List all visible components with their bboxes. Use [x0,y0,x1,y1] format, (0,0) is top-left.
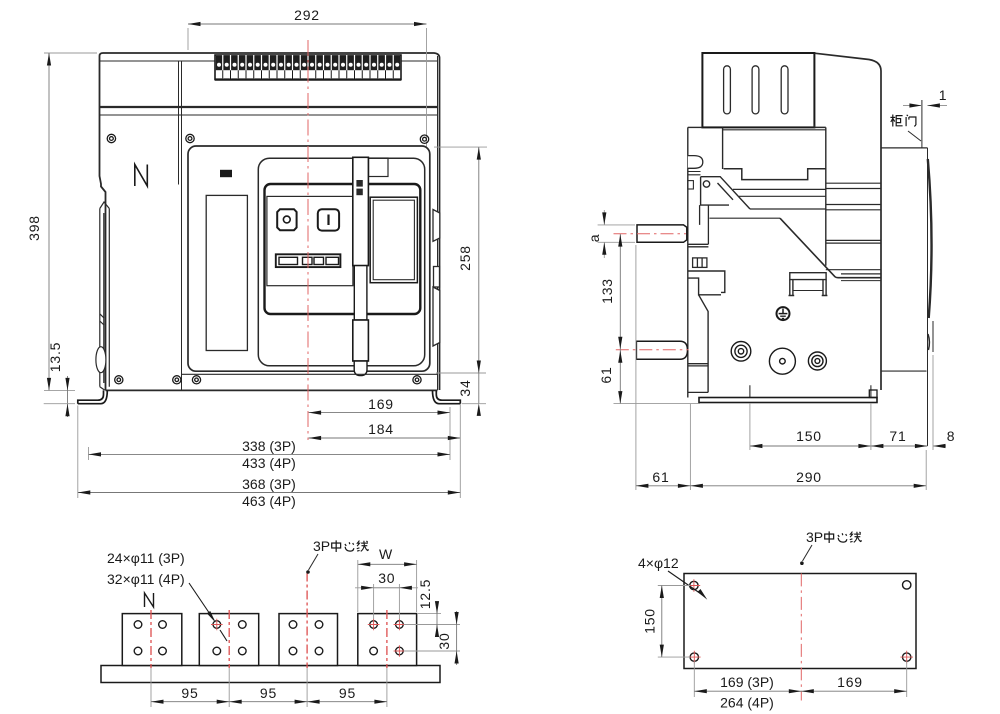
svg-text:184: 184 [368,421,394,437]
svg-text:61: 61 [598,366,614,383]
svg-text:169 (3P): 169 (3P) [720,674,774,690]
svg-text:3P: 3P [313,538,330,554]
svg-text:433 (4P): 433 (4P) [242,455,296,471]
svg-text:290: 290 [796,469,822,485]
svg-text:338 (3P): 338 (3P) [242,438,296,454]
svg-text:a: a [586,234,602,243]
svg-text:1: 1 [939,87,948,103]
svg-text:368 (3P): 368 (3P) [242,476,296,492]
svg-text:292: 292 [294,7,320,23]
svg-text:3P: 3P [806,529,823,545]
svg-text:463 (4P): 463 (4P) [242,493,296,509]
svg-text:150: 150 [642,608,658,634]
svg-text:32×φ11 (4P): 32×φ11 (4P) [107,571,185,587]
svg-text:W: W [379,546,393,562]
svg-text:95: 95 [260,685,277,701]
svg-text:169: 169 [837,674,863,690]
svg-text:12.5: 12.5 [417,579,433,609]
svg-text:13.5: 13.5 [47,342,63,372]
svg-text:30: 30 [378,570,395,586]
svg-text:95: 95 [181,685,198,701]
svg-text:8: 8 [947,428,956,444]
svg-text:150: 150 [796,428,822,444]
svg-text:24×φ11 (3P): 24×φ11 (3P) [107,550,185,566]
svg-text:258: 258 [457,245,473,271]
svg-text:71: 71 [889,428,906,444]
svg-text:264 (4P): 264 (4P) [720,695,774,711]
svg-text:61: 61 [652,469,669,485]
svg-text:398: 398 [26,215,42,241]
svg-text:4×φ12: 4×φ12 [638,555,679,571]
svg-text:34: 34 [457,379,473,396]
svg-text:169: 169 [368,396,394,412]
svg-text:30: 30 [436,632,452,649]
svg-text:133: 133 [599,278,615,304]
svg-text:95: 95 [339,685,356,701]
